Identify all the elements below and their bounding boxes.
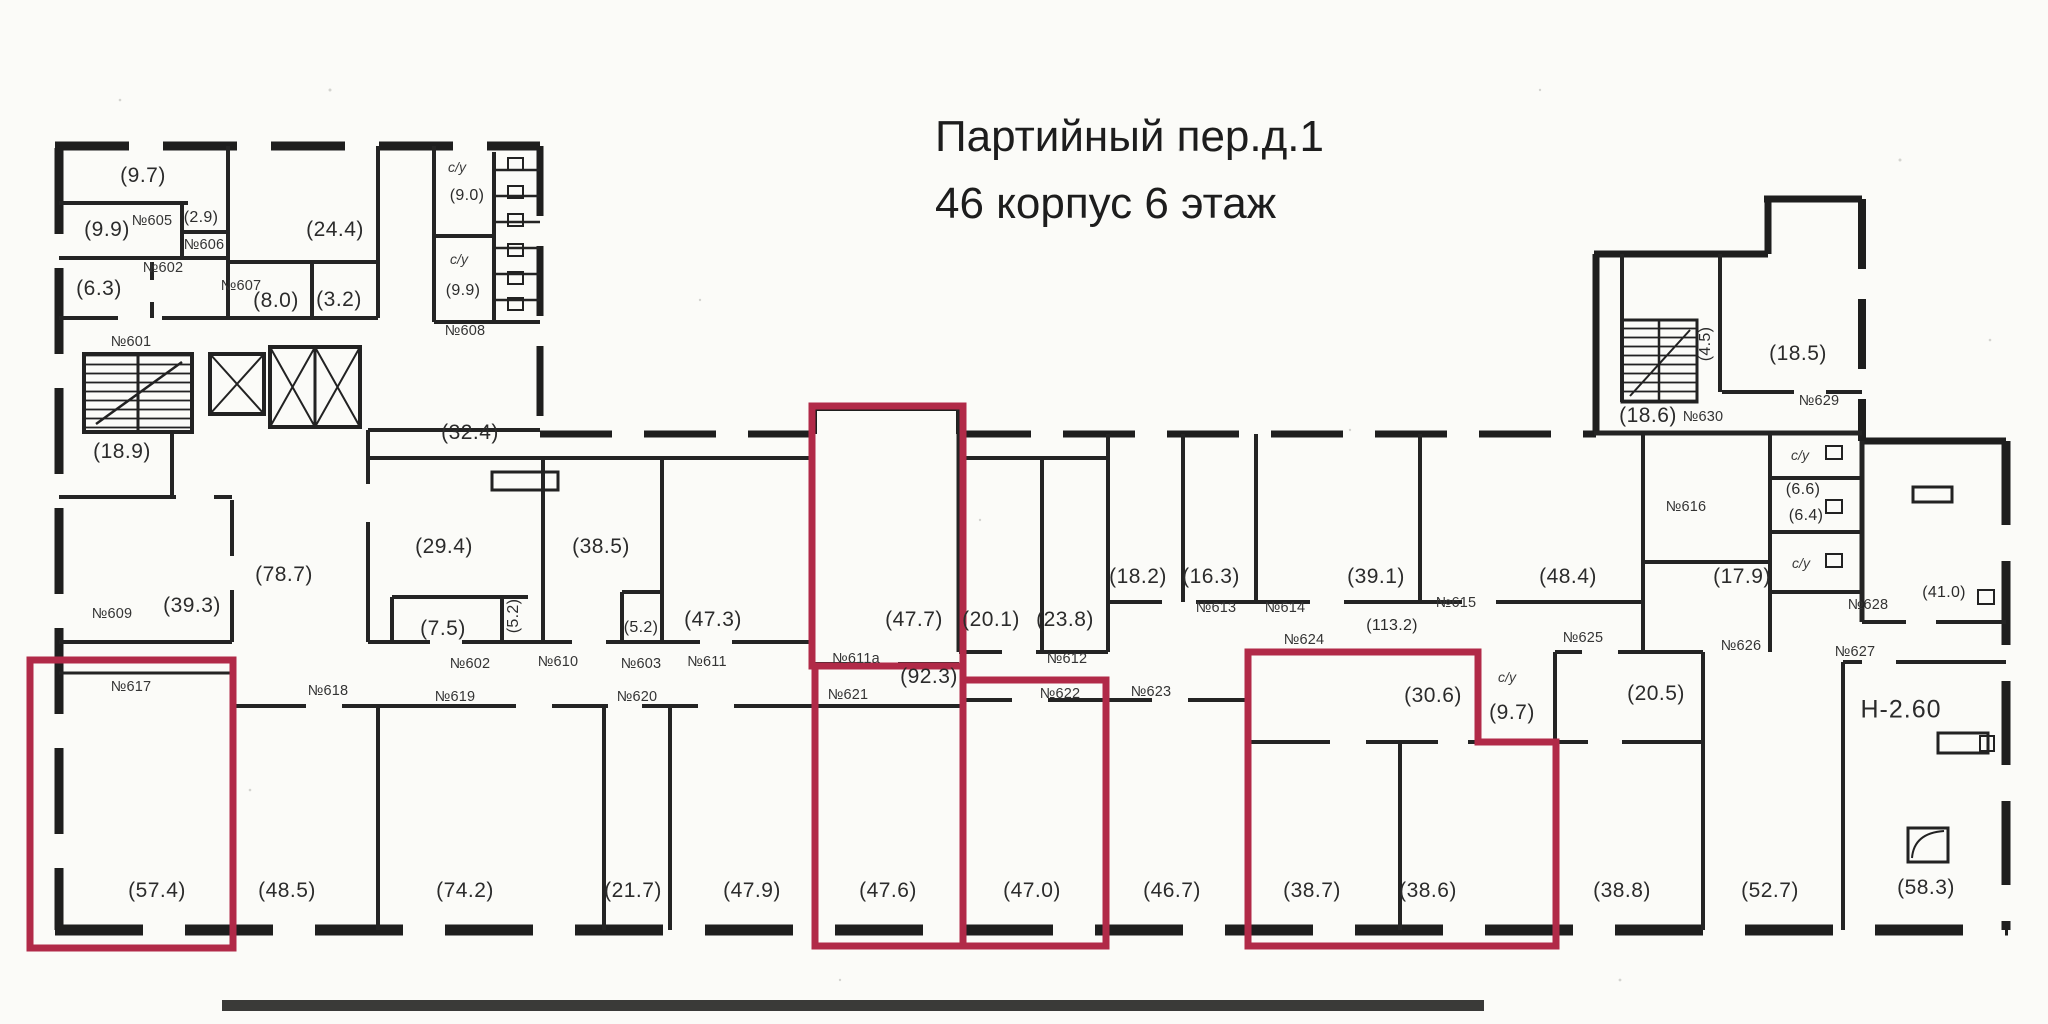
area-label-47-0: (47.0) bbox=[1003, 879, 1061, 903]
room-number-label-617: №617 bbox=[111, 679, 152, 695]
area-label-30-6: (30.6) bbox=[1404, 684, 1462, 708]
wc-label: с/у bbox=[1498, 669, 1516, 685]
area-label-47-9: (47.9) bbox=[723, 879, 781, 903]
area-label-23-8: (23.8) bbox=[1036, 608, 1094, 632]
area-label-78-7: (78.7) bbox=[255, 563, 313, 587]
area-label-41-0: (41.0) bbox=[1922, 584, 1966, 602]
area-label-92-3: (92.3) bbox=[900, 665, 958, 689]
area-label-9-9: (9.9) bbox=[84, 218, 130, 242]
area-label-8-0: (8.0) bbox=[253, 289, 299, 313]
area-label-9-7: (9.7) bbox=[1489, 701, 1535, 725]
wc-label: с/у bbox=[450, 251, 468, 267]
area-label-39-3: (39.3) bbox=[163, 594, 221, 618]
room-number-label-627: №627 bbox=[1835, 644, 1876, 660]
room-number-label-629: №629 bbox=[1799, 393, 1840, 409]
area-label-18-6: (18.6) bbox=[1619, 404, 1677, 428]
room-number-label-614: №614 bbox=[1265, 600, 1306, 616]
room-number-label-615: №615 bbox=[1436, 595, 1477, 611]
area-label-46-7: (46.7) bbox=[1143, 879, 1201, 903]
room-number-label-609: №609 bbox=[92, 606, 133, 622]
room-number-label-606: №606 bbox=[184, 237, 225, 253]
room-number-label-618: №618 bbox=[308, 683, 349, 699]
area-label-38-6: (38.6) bbox=[1399, 879, 1457, 903]
labels-layer: (9.7)(9.9)№605(2.9)№606№602(6.3)(24.4)№6… bbox=[0, 0, 2048, 1024]
area-label-52-7: (52.7) bbox=[1741, 879, 1799, 903]
room-number-label-610: №610 bbox=[538, 654, 579, 670]
area-label-3-2: (3.2) bbox=[316, 288, 362, 312]
area-label-6-3: (6.3) bbox=[76, 277, 122, 301]
room-number-label-626: №626 bbox=[1721, 638, 1762, 654]
area-label-32-4: (32.4) bbox=[441, 421, 499, 445]
area-label-18-5: (18.5) bbox=[1769, 342, 1827, 366]
room-number-label-603: №603 bbox=[621, 656, 662, 672]
room-number-label-605: №605 bbox=[132, 213, 173, 229]
area-label-20-1: (20.1) bbox=[962, 608, 1020, 632]
room-number-label-611а: №611а bbox=[832, 651, 880, 667]
area-label-39-1: (39.1) bbox=[1347, 565, 1405, 589]
area-label-18-9: (18.9) bbox=[93, 440, 151, 464]
area-label-20-5: (20.5) bbox=[1627, 682, 1685, 706]
area-label-38-5: (38.5) bbox=[572, 535, 630, 559]
area-label-57-4: (57.4) bbox=[128, 879, 186, 903]
area-label-2-9: (2.9) bbox=[184, 209, 218, 227]
area-label-38-7: (38.7) bbox=[1283, 879, 1341, 903]
area-label-48-5: (48.5) bbox=[258, 879, 316, 903]
room-number-label-625: №625 bbox=[1563, 630, 1604, 646]
ceiling-height-label: Н-2.60 bbox=[1860, 696, 1941, 725]
area-label-6-6: (6.6) bbox=[1786, 481, 1820, 499]
wc-label: с/у bbox=[448, 159, 466, 175]
room-number-label-621: №621 bbox=[828, 687, 869, 703]
room-number-label-616: №616 bbox=[1666, 499, 1707, 515]
area-label-18-2: (18.2) bbox=[1109, 565, 1167, 589]
room-number-label-602: №602 bbox=[450, 656, 491, 672]
room-number-label-622: №622 bbox=[1040, 686, 1081, 702]
area-label-47-3: (47.3) bbox=[684, 608, 742, 632]
area-label-16-3: (16.3) bbox=[1182, 565, 1240, 589]
room-number-label-611: №611 bbox=[687, 654, 726, 670]
room-number-label-613: №613 bbox=[1196, 600, 1237, 616]
area-label-9-0: (9.0) bbox=[450, 187, 484, 205]
room-number-label-612: №612 bbox=[1047, 651, 1088, 667]
room-number-label-623: №623 bbox=[1131, 684, 1172, 700]
area-label-21-7: (21.7) bbox=[604, 879, 662, 903]
area-label-24-4: (24.4) bbox=[306, 218, 364, 242]
area-label-47-6: (47.6) bbox=[859, 879, 917, 903]
room-number-label-628: №628 bbox=[1848, 597, 1889, 613]
area-label-58-3: (58.3) bbox=[1897, 876, 1955, 900]
area-label-5-2: (5.2) bbox=[624, 619, 658, 637]
room-number-label-619: №619 bbox=[435, 689, 476, 705]
area-label-6-4: (6.4) bbox=[1789, 507, 1823, 525]
wc-label: с/у bbox=[1791, 447, 1809, 463]
area-label-38-8: (38.8) bbox=[1593, 879, 1651, 903]
area-label-5-2: (5.2) bbox=[505, 599, 523, 633]
area-label-4-5: (4.5) bbox=[1697, 327, 1715, 361]
room-number-label-620: №620 bbox=[617, 689, 658, 705]
area-label-74-2: (74.2) bbox=[436, 879, 494, 903]
room-number-label-630: №630 bbox=[1683, 409, 1724, 425]
area-label-47-7: (47.7) bbox=[885, 608, 943, 632]
room-number-label-624: №624 bbox=[1284, 632, 1325, 648]
room-number-label-608: №608 bbox=[445, 323, 486, 339]
room-number-label-601: №601 bbox=[111, 334, 152, 350]
floor-plan-page: Партийный пер.д.1 46 корпус 6 этаж (9.7)… bbox=[0, 0, 2048, 1024]
area-label-113-2: (113.2) bbox=[1366, 617, 1418, 635]
area-label-9-7: (9.7) bbox=[120, 164, 166, 188]
area-label-48-4: (48.4) bbox=[1539, 565, 1597, 589]
area-label-9-9: (9.9) bbox=[446, 282, 480, 300]
area-label-17-9: (17.9) bbox=[1713, 565, 1771, 589]
area-label-7-5: (7.5) bbox=[420, 617, 466, 641]
wc-label: с/у bbox=[1792, 555, 1810, 571]
area-label-29-4: (29.4) bbox=[415, 535, 473, 559]
room-number-label-602: №602 bbox=[143, 260, 184, 276]
